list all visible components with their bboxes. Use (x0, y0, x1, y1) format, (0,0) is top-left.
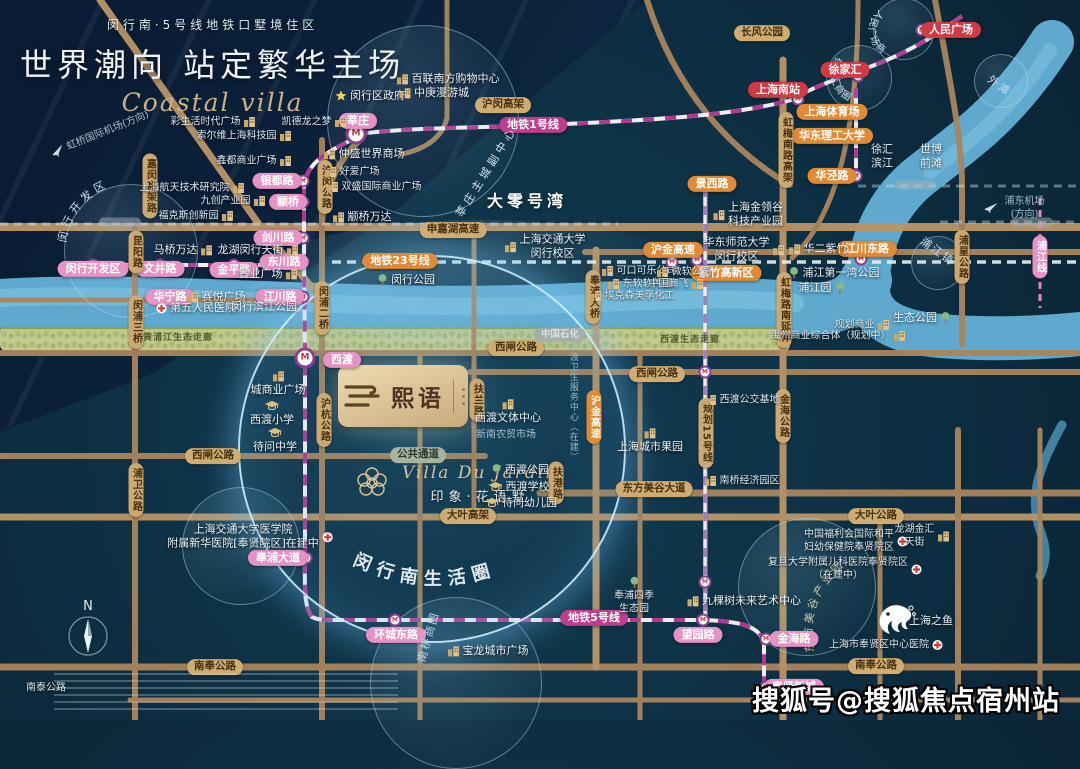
poi-label: 中庚漫游城 (399, 86, 469, 100)
poi-label: 浦江第一湾公园 (789, 266, 880, 280)
poi-label: 上海交通大学 闵行校区 (505, 233, 586, 262)
divider (453, 379, 454, 413)
cap-icon (485, 497, 499, 508)
metro-station-pill: 闵行开发区 (58, 261, 129, 277)
poi-label: 大零号湾 (487, 192, 567, 213)
label-text: 文井路 (144, 262, 177, 276)
label-text: 闵行开发区 (66, 262, 121, 276)
poi-label: 闵行公园 (377, 273, 435, 287)
label-text: 西渡公园 (505, 463, 549, 477)
compass: N (64, 596, 112, 664)
label-text: 闵行公园 (391, 273, 435, 287)
faint-road-tag (99, 218, 141, 227)
poi-label: 福克斯创新园 (159, 210, 234, 223)
title-script: Coastal villa (20, 88, 405, 117)
cap-icon (268, 428, 282, 439)
road-pill: 申嘉湖高速 (420, 222, 487, 238)
road-pill: 西闸公路 (488, 340, 544, 356)
bld-icon (713, 210, 725, 221)
label-text: 南奉公路 (194, 660, 236, 674)
metro-station-icon: M (699, 366, 712, 379)
road-pill: 闵浦二桥 (315, 281, 330, 335)
label-text: 华东理工大学 (799, 129, 865, 143)
label-text: 待问幼儿园 (502, 496, 557, 510)
hosp-icon (911, 564, 922, 575)
label-text: 浦卫公路 (130, 468, 143, 512)
label-text: 西渡小学 (250, 413, 294, 427)
poi-label: 上海城市果园 (617, 428, 683, 454)
poi-label: 上海金领谷 科技产业园 (713, 201, 783, 230)
label-text: 长风公园 (741, 26, 783, 40)
label-text: 龙湖金汇 天街 (895, 523, 935, 549)
cap-icon (265, 401, 279, 412)
poi-label: 闵行滨江公园 (231, 300, 297, 314)
poi-label: 徐汇 滨江 (871, 143, 893, 172)
poi-label: 好爱广场 (325, 166, 380, 179)
label-text: 大零号湾 (487, 192, 567, 213)
label-text: 东方美谷大道 (623, 482, 686, 496)
bld-icon (287, 244, 299, 255)
metro-station-pill: 上海南站 (748, 82, 808, 98)
road-pill: 浦卫公路 (129, 463, 144, 517)
label-text: 银都路 (261, 174, 294, 188)
poi-label: 九创产业园 (201, 195, 266, 208)
label-text: 西闸公路 (495, 341, 537, 355)
label-text: 上海金领谷 科技产业园 (728, 201, 783, 230)
bld-icon (602, 266, 614, 277)
tree-icon (491, 464, 502, 476)
metro-station-pill: 颛桥 (269, 194, 307, 210)
bld-icon (244, 117, 256, 128)
road-pill: 沪杭公路 (317, 393, 332, 447)
poi-label: 浦江园 (799, 281, 846, 295)
label-text: 金海路 (778, 632, 811, 646)
bld-icon (705, 395, 717, 406)
label-text: 上海之鱼 (909, 614, 953, 628)
label-text: 华二紫竹 (804, 242, 848, 256)
label-text: 沪金高速 (651, 243, 695, 257)
poi-label: 上海航天技术研究院 (140, 182, 245, 195)
seal-marks (462, 388, 465, 405)
label-text: 江川东路 (845, 242, 889, 256)
label-text: 世博 前滩 (920, 143, 942, 172)
metro-station-pill: 环城东路 (366, 627, 426, 643)
label-text: 南奉公路 (855, 659, 897, 673)
metro-line-pill: 浦江线 (1033, 236, 1048, 279)
label-text: 沪闵高架 (482, 98, 524, 112)
label-text: 置业广场 (239, 267, 283, 281)
label-text: 规划15号线 (700, 403, 713, 463)
poi-label: 中国福利会国际和平 妇幼保健院奉贤院区 (804, 528, 908, 554)
label-text: 环城东路 (374, 628, 418, 642)
label-text: 闵行滨江公园 (231, 300, 297, 314)
poi-label: 索尔维上海科技园 (197, 130, 292, 143)
label-text: 马桥万达 (154, 243, 198, 257)
poi-label: 禹州商业综合体（规划中） (771, 330, 906, 343)
label-text: 上海航天技术研究院 (140, 182, 230, 195)
label-text: 徐汇 滨江 (871, 143, 893, 172)
bld-icon (233, 183, 245, 194)
bld-icon (657, 267, 669, 278)
label-text: 上海体育场 (805, 105, 860, 119)
label-text: 地铁5号线 (568, 611, 620, 625)
label-text: 华泾路 (816, 169, 849, 183)
label-text: 西渡学校 (506, 480, 550, 494)
label-text: 人民广场 (929, 23, 973, 37)
bld-icon (222, 211, 234, 222)
label-text: 望园路 (682, 628, 715, 642)
road-pill: 中国石化 (534, 328, 586, 342)
poi-label: 龙湖闵行天街 (218, 243, 299, 257)
label-text: 第五人民医院 (170, 301, 236, 315)
poi-label: 新南农贸市场 (476, 429, 536, 442)
label-text: 城商业广场 (251, 383, 306, 397)
poi-label: 西渡文体中心 (475, 399, 541, 425)
label-text: 闵浦二桥 (316, 286, 329, 330)
label-text: 中国石化 (541, 329, 579, 341)
label-text: 大叶高架 (447, 509, 489, 523)
label-text: 凯德龙之梦 (282, 116, 332, 129)
label-text: 沪杭公路 (318, 398, 331, 442)
label-text: 大叶公路 (855, 509, 897, 523)
compass-north-label: N (83, 599, 93, 614)
faint-road-tag (894, 181, 936, 190)
label-text: 上海南站 (756, 83, 800, 97)
label-text: 鑫都商业广场 (217, 155, 277, 168)
poi-label: 置业广场 (239, 267, 298, 281)
label-text: 新南农贸市场 (476, 429, 536, 442)
bld-icon (687, 595, 699, 606)
poi-label: 龙湖金汇 天街 (895, 523, 950, 549)
plane-icon (984, 202, 998, 214)
road-pill: 西闸公路 (629, 366, 685, 382)
bld-icon (327, 182, 339, 193)
road-pill: 虹梅南路高架 (779, 112, 794, 188)
label-text: 公共通道 (397, 448, 439, 462)
poi-label: 华东师范大学 闵行校区 (704, 236, 785, 265)
metro-station-icon: M (699, 576, 712, 589)
label-text: 待问中学 (253, 440, 297, 454)
metro-station-pill: 徐家汇 (821, 62, 870, 78)
project-card: 熙语 (338, 365, 468, 427)
label-text: 禹州商业综合体（规划中） (771, 330, 891, 343)
label-text: 奉浦四季 生态园 (614, 590, 654, 616)
poi-label: 上海市奉贤区中心医院 (829, 639, 943, 652)
project-wave-logo (341, 380, 383, 412)
poi-label: 西渡公交基地 (705, 394, 780, 407)
road-pill: 西闸公路 (185, 448, 241, 464)
label-text: 彩生活时代广场 (171, 116, 241, 129)
label-text: 双盛国际商业广场 (342, 181, 422, 194)
title-block: 闵行南·5号线地铁口墅境住区 世界潮向 站定繁华主场 Coastal villa (20, 16, 405, 117)
bld-icon (789, 243, 801, 254)
label-text: 浦江园 (799, 281, 832, 295)
poi-label: 埃克森美孚化工 (590, 290, 675, 303)
road-pill: 大叶公路 (848, 508, 904, 524)
road-pill: 南奉公路 (848, 658, 904, 674)
label-text: 黄浦江生态走廊 (143, 333, 213, 345)
hosp-icon (322, 532, 333, 543)
bld-icon (692, 279, 704, 290)
poi-pill: 上海体育场 (797, 104, 868, 120)
bld-icon (254, 196, 266, 207)
bld-icon (333, 211, 345, 222)
label-text: 地铁23号线 (370, 254, 429, 268)
label-text: 西渡文体中心 (475, 411, 541, 425)
bld-icon (201, 244, 213, 255)
label-text: 中国福利会国际和平 妇幼保健院奉贤院区 (804, 528, 894, 554)
road-pill: 长风公园 (734, 25, 790, 41)
road-pill: 沪金高速 (587, 390, 602, 444)
poi-label: 上海之鱼 (909, 614, 953, 628)
poi-pill: 华东理工大学 (791, 128, 873, 144)
metro-station-pill: 人民广场 (921, 22, 981, 38)
label-text: 申嘉湖高速 (427, 223, 480, 237)
tree-icon (629, 577, 640, 589)
tree-icon (940, 312, 951, 324)
label-text: 浦江第一湾公园 (803, 266, 880, 280)
bld-icon (286, 268, 298, 279)
label-text: 南桥经济园区 (720, 475, 780, 488)
label-text: 宝龙城市广场 (463, 644, 529, 658)
metro-station-icon: M (389, 614, 402, 627)
label-text: 华东师范大学 闵行校区 (704, 236, 770, 265)
label-text: 颛桥万达 (348, 210, 392, 224)
bld-icon (705, 476, 717, 487)
label-text: 好爱广场 (340, 166, 380, 179)
poi-label: 复旦大学附属儿科医院奉贤院区 （在建中） (768, 556, 922, 582)
label-text: 龙湖闵行天街 (218, 243, 284, 257)
cap-icon (489, 481, 503, 492)
poi-label: 浦东机场(方向) (984, 195, 1048, 221)
label-text: 西渡 (331, 353, 353, 367)
tree-icon (835, 282, 846, 294)
road-pill: 规划15号线 (699, 398, 714, 468)
bld-icon (280, 156, 292, 167)
label-text: 九棵树未来艺术中心 (702, 594, 801, 608)
poi-label: 南桥经济园区 (705, 475, 780, 488)
label-text: 浦东机场(方向) (1001, 195, 1048, 221)
poi-label: 九棵树未来艺术中心 (687, 594, 801, 608)
location-map: 人民广场商圈 徐家汇商圈 闵行开发区 闵行南生活圈 东方美谷产业园 闵行南·5号… (0, 0, 1080, 720)
road-pill: 大叶高架 (440, 508, 496, 524)
label-text: 复旦大学附属儿科医院奉贤院区 （在建中） (768, 556, 908, 582)
poi-label: 生态公园 (893, 311, 951, 325)
label-text: 百联南方购物中心 (412, 72, 500, 86)
bld-icon (280, 131, 292, 142)
label-text: 埃克森美孚化工 (605, 290, 675, 303)
label-text: 徐家汇 (829, 63, 862, 77)
metro-station-pill: 金海路 (770, 631, 819, 647)
poi-label: 黄浦江生态走廊 (143, 333, 213, 345)
poi-label: 奉浦四季 生态园 (614, 577, 654, 616)
bld-icon (773, 245, 785, 256)
poi-pill: 沪金高速 (643, 242, 703, 258)
bld-icon (938, 531, 950, 542)
bld-icon (502, 399, 514, 410)
bld-icon (608, 279, 620, 290)
subtitle: 闵行南·5号线地铁口墅境住区 (20, 16, 405, 33)
road-pill: 东方美谷大道 (616, 481, 693, 497)
road-pill: 沪闵高架 (475, 97, 531, 113)
disclaimer-text-block (54, 673, 398, 715)
label-text: 闵浦三桥 (130, 300, 143, 344)
label-text: 虹梅南路高架 (780, 117, 793, 183)
label-text: 西闸公路 (636, 367, 678, 381)
bld-icon (448, 645, 460, 656)
bld-icon (325, 167, 337, 178)
poi-label: 百联南方购物中心 (397, 72, 500, 86)
label-text: 颛桥 (277, 195, 299, 209)
poi-label: 西渡小学 (250, 401, 294, 427)
poi-label: 待问中学 (253, 428, 297, 454)
label-text: 扶港路 (550, 467, 563, 500)
label-text: 福克斯创新园 (159, 210, 219, 223)
label-text: 昆阳路 (130, 236, 143, 269)
label-text: 西闸公路 (192, 449, 234, 463)
page-title: 世界潮向 站定繁华主场 (20, 40, 405, 86)
poi-label: 西渡公园 (491, 463, 549, 477)
poi-label: 鑫都商业广场 (217, 155, 292, 168)
poi-label: 仲盛世界商场 (324, 147, 405, 161)
label-text: 西渡卫生服务中心（在建） (566, 342, 578, 462)
poi-label: 世博 前滩 (920, 143, 942, 172)
bld-icon (335, 117, 347, 128)
label-text: 西渡生态走廊 (660, 335, 720, 347)
tree-icon (377, 274, 388, 286)
poi-label: 西渡学校 (489, 480, 550, 494)
label-text: 上海交通大学 闵行校区 (520, 233, 586, 262)
bld-icon (505, 242, 517, 253)
flower-logo-icon (352, 462, 392, 506)
metro-station-pill: 西渡 (323, 352, 361, 368)
poi-label: 颛桥万达 (333, 210, 392, 224)
label-text: 浦江线 (1034, 241, 1047, 274)
poi-label: 马桥万达 (154, 243, 213, 257)
poi-label: 西渡卫生服务中心（在建） (566, 342, 578, 462)
label-text: 生态公园 (893, 311, 937, 325)
label-text: 上海城市果园 (617, 440, 683, 454)
bld-icon (590, 291, 602, 302)
tree-icon (789, 267, 800, 279)
poi-label: 华二紫竹 (789, 242, 848, 256)
poi-pill: 华泾路 (808, 168, 857, 184)
poi-label: 彩生活时代广场 (171, 116, 256, 129)
poi-label: 待问幼儿园 (485, 496, 557, 510)
label-text: 上海市奉贤区中心医院 (829, 639, 929, 652)
label-text: 沪金高速 (588, 395, 601, 439)
poi-label: 第五人民医院 (156, 301, 236, 315)
poi-label: 西渡生态走廊 (660, 335, 720, 347)
metro-station-pill: 银都路 (253, 173, 302, 189)
label-text: 浦星公路 (956, 235, 969, 279)
bld-icon (272, 371, 284, 382)
poi-pill: 地铁23号线 (362, 253, 437, 269)
label-text: 景西路 (696, 177, 729, 191)
bld-icon (324, 148, 336, 159)
metro-station-pill: 望园路 (674, 627, 723, 643)
bld-icon (644, 428, 656, 439)
watermark: 搜狐号@搜狐焦点宿州站 (752, 679, 1060, 718)
label-text: 索尔维上海科技园 (197, 130, 277, 143)
poi-label: 双盛国际商业广场 (327, 181, 422, 194)
poi-label: 宝龙城市广场 (448, 644, 529, 658)
metro-station-icon: M (697, 614, 710, 627)
hosp-icon (156, 302, 167, 313)
poi-label: 凯德龙之梦 (282, 116, 347, 129)
road-pill: 昆阳路 (129, 231, 144, 274)
metro-station-pill: 奉浦大道 (248, 550, 308, 566)
label-text: 仲盛世界商场 (339, 147, 405, 161)
label-text: 上海交通大学医学院 附属新华医院[奉贤院区]在建中 (167, 523, 319, 552)
hosp-icon (932, 640, 943, 651)
metro-station-icon: M (295, 348, 316, 369)
poi-label: 上海交通大学医学院 附属新华医院[奉贤院区]在建中 (167, 523, 333, 552)
road-pill: 公共通道 (390, 447, 446, 463)
label-text: 九创产业园 (201, 195, 251, 208)
project-name: 熙语 (391, 379, 445, 413)
label-text: 西渡公交基地 (720, 394, 780, 407)
poi-pill: 景西路 (688, 176, 737, 192)
label-text: 中庚漫游城 (414, 86, 469, 100)
poi-label: 城商业广场 (251, 371, 306, 397)
label-text: 奉浦大道 (256, 551, 300, 565)
bld-icon (894, 331, 906, 342)
road-pill: 闵浦三桥 (129, 295, 144, 349)
